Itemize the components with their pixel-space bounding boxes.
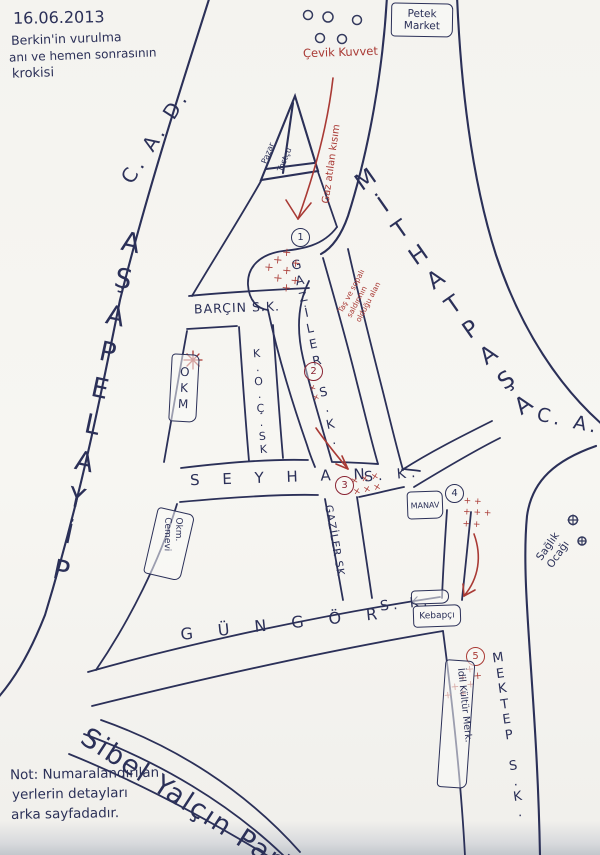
- note-line2: yerlerin detayları: [12, 785, 128, 803]
- unlabeled-small-box: [411, 589, 449, 604]
- petek-market-label-1: Petek: [407, 8, 436, 21]
- okm-label: OKM: [178, 363, 191, 412]
- manav-box: MANAV: [407, 490, 444, 519]
- numbered-point-4: 4: [445, 484, 464, 503]
- tree-marks: [568, 515, 586, 545]
- numbered-point-2: 2: [304, 362, 323, 381]
- petek-market-box: Petek Market: [391, 2, 454, 37]
- street-label-barcin: BARÇIN S.K.: [194, 299, 280, 317]
- numbered-point-1: 1: [291, 228, 310, 247]
- okm-building-box: OKM: [168, 353, 200, 422]
- manav-label: MANAV: [410, 500, 439, 510]
- okm-cemevi-label: Okm. Cemevi: [161, 517, 184, 575]
- kebapci-label: Kebapçı: [419, 610, 455, 621]
- triangle-island: [261, 96, 318, 180]
- hand-drawn-map-page: 16.06.2013 Berkin'in vurulma anı ve heme…: [0, 0, 600, 855]
- riot-police-unit-circles: [304, 11, 362, 44]
- map-caption-line3: krokisi: [12, 65, 55, 81]
- cevik-kuvvet-label: Çevik Kuvvet: [303, 44, 378, 61]
- map-date: 16.06.2013: [13, 7, 105, 28]
- petek-market-label-2: Market: [404, 20, 440, 33]
- crowd-marks-point-4: + + + + + + +: [462, 496, 492, 531]
- kebapci-box: Kebapçı: [413, 604, 462, 628]
- note-line3: arka sayfadadır.: [11, 805, 119, 823]
